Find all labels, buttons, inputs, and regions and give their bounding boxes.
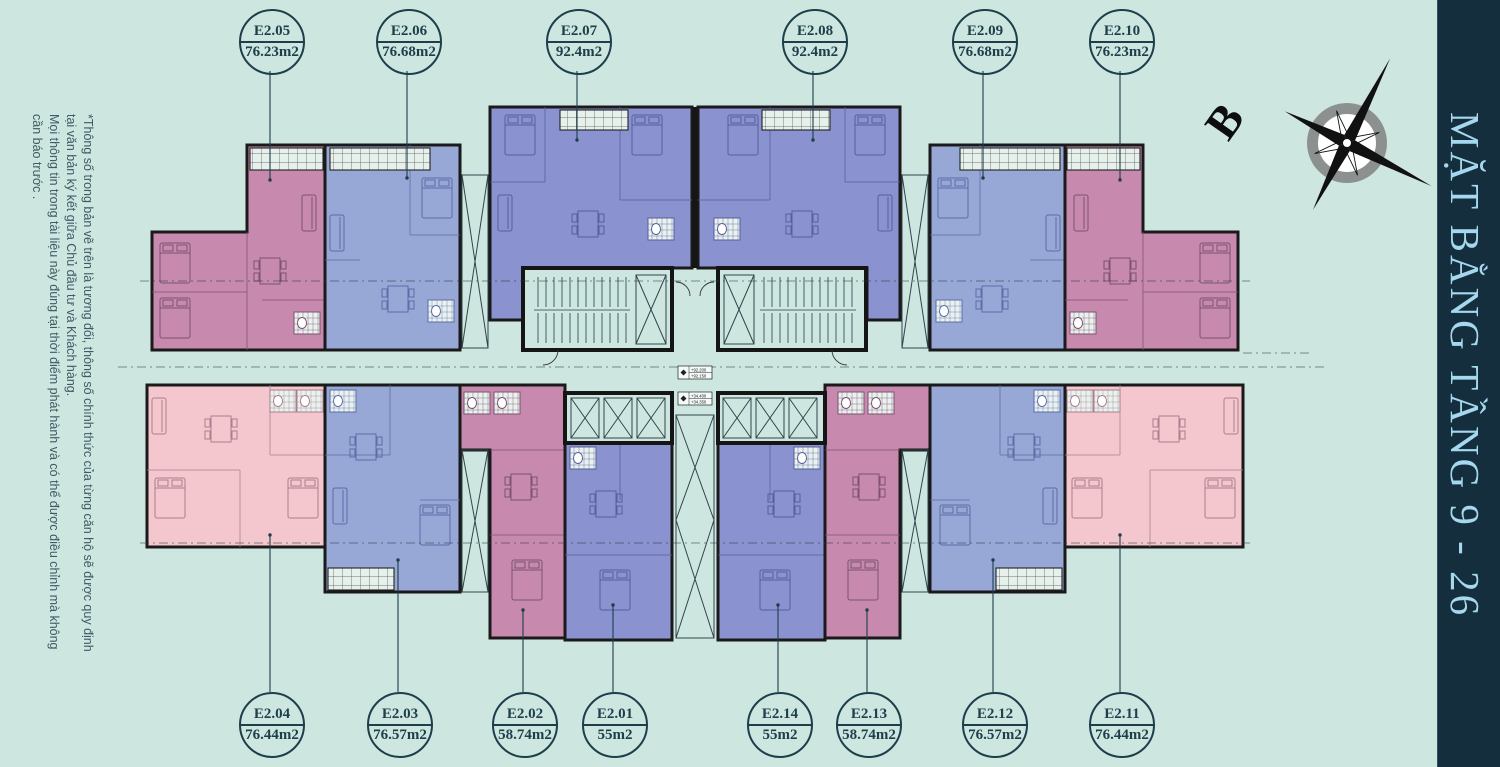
unit-e2-02-plan xyxy=(460,385,565,638)
elevator-bank-left xyxy=(565,393,672,443)
compass-north-label: B xyxy=(1195,94,1254,148)
unit-id: E2.08 xyxy=(784,11,846,43)
unit-area: 92.4m2 xyxy=(548,43,610,73)
disclaimer-line: cần báo trước . xyxy=(28,114,45,738)
unit-e2-05-plan xyxy=(152,145,325,350)
unit-badge-e2-11: E2.1176.44m2 xyxy=(1089,692,1155,758)
unit-area: 76.68m2 xyxy=(378,43,440,73)
unit-badge-e2-06: E2.0676.68m2 xyxy=(376,9,442,75)
unit-area: 76.23m2 xyxy=(241,43,303,73)
level-marker-upper: +92.200 +92.150 xyxy=(678,366,712,379)
compass-rose: B xyxy=(1195,27,1475,253)
unit-id: E2.01 xyxy=(584,694,646,726)
unit-id: E2.07 xyxy=(548,11,610,43)
unit-area: 92.4m2 xyxy=(784,43,846,73)
unit-e2-09-plan xyxy=(930,145,1065,350)
unit-badge-e2-02: E2.0258.74m2 xyxy=(492,692,558,758)
unit-e2-12-plan xyxy=(930,385,1065,592)
unit-id: E2.04 xyxy=(241,694,303,726)
unit-id: E2.02 xyxy=(494,694,556,726)
unit-e2-13-plan xyxy=(825,385,930,638)
unit-e2-11-plan xyxy=(1065,385,1243,547)
unit-area: 76.57m2 xyxy=(369,726,431,756)
level-marker-lower: +34.400 +34.350 xyxy=(678,392,712,405)
unit-e2-03-plan xyxy=(325,385,460,592)
unit-badge-e2-12: E2.1276.57m2 xyxy=(962,692,1028,758)
unit-badge-e2-13: E2.1358.74m2 xyxy=(836,692,902,758)
unit-id: E2.12 xyxy=(964,694,1026,726)
unit-badge-e2-14: E2.1455m2 xyxy=(747,692,813,758)
elevator-bank-right xyxy=(718,393,825,443)
level-value: +34.400 xyxy=(691,394,707,399)
unit-e2-04-plan xyxy=(147,385,325,547)
unit-area: 76.44m2 xyxy=(1091,726,1153,756)
unit-area: 58.74m2 xyxy=(494,726,556,756)
unit-area: 76.44m2 xyxy=(241,726,303,756)
disclaimer-note: *Thông số trong bản vẽ trên là tương đối… xyxy=(28,114,96,738)
floor-plan-page: +92.200 +92.150 +34.400 +34.350 B E2.057… xyxy=(0,0,1500,767)
stair-core-left xyxy=(523,268,672,350)
unit-area: 76.23m2 xyxy=(1091,43,1153,73)
unit-e2-01-plan xyxy=(565,443,672,640)
unit-id: E2.05 xyxy=(241,11,303,43)
unit-id: E2.14 xyxy=(749,694,811,726)
unit-area: 55m2 xyxy=(584,726,646,756)
level-value: +92.200 xyxy=(691,368,707,373)
unit-id: E2.13 xyxy=(838,694,900,726)
level-value: +34.350 xyxy=(691,400,707,405)
disclaimer-line: Mọi thông tin trong tài liệu này đúng tạ… xyxy=(45,114,62,738)
unit-badge-e2-10: E2.1076.23m2 xyxy=(1089,9,1155,75)
unit-id: E2.03 xyxy=(369,694,431,726)
unit-area: 76.68m2 xyxy=(954,43,1016,73)
unit-id: E2.09 xyxy=(954,11,1016,43)
unit-id: E2.06 xyxy=(378,11,440,43)
unit-badge-e2-09: E2.0976.68m2 xyxy=(952,9,1018,75)
unit-badge-e2-03: E2.0376.57m2 xyxy=(367,692,433,758)
floor-plan-drawing: +92.200 +92.150 +34.400 +34.350 B xyxy=(0,0,1500,767)
unit-area: 55m2 xyxy=(749,726,811,756)
unit-badge-e2-04: E2.0476.44m2 xyxy=(239,692,305,758)
unit-badge-e2-07: E2.0792.4m2 xyxy=(546,9,612,75)
level-value: +92.150 xyxy=(691,374,707,379)
unit-e2-10-plan xyxy=(1065,145,1238,350)
unit-badge-e2-01: E2.0155m2 xyxy=(582,692,648,758)
unit-e2-14-plan xyxy=(718,443,825,640)
unit-badge-e2-05: E2.0576.23m2 xyxy=(239,9,305,75)
stair-core-right xyxy=(718,268,866,350)
unit-e2-06-plan xyxy=(325,145,460,350)
unit-area: 76.57m2 xyxy=(964,726,1026,756)
page-title: MẶT BẰNG TẦNG 9 - 26 xyxy=(1441,112,1489,618)
unit-id: E2.11 xyxy=(1091,694,1153,726)
unit-badge-e2-08: E2.0892.4m2 xyxy=(782,9,848,75)
unit-area: 58.74m2 xyxy=(838,726,900,756)
disclaimer-line: *Thông số trong bản vẽ trên là tương đối… xyxy=(79,114,96,738)
unit-id: E2.10 xyxy=(1091,11,1153,43)
disclaimer-line: tại văn bản ký kết giữa Chủ đầu tư và Kh… xyxy=(62,114,79,738)
